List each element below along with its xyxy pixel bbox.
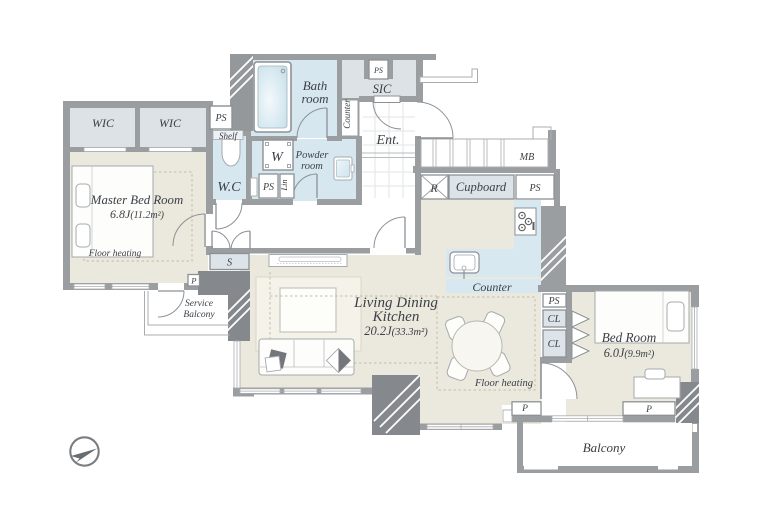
svg-text:CL: CL — [548, 339, 561, 350]
svg-text:PS: PS — [373, 66, 383, 75]
svg-text:WIC: WIC — [159, 116, 182, 130]
svg-text:Kitchen: Kitchen — [372, 309, 420, 325]
svg-text:Balcony: Balcony — [583, 440, 626, 455]
svg-text:SIC: SIC — [373, 82, 392, 96]
svg-text:Powder: Powder — [295, 150, 330, 161]
svg-text:Cupboard: Cupboard — [456, 180, 507, 194]
svg-text:PS: PS — [528, 183, 540, 194]
svg-text:Counter: Counter — [342, 99, 352, 129]
svg-text:P: P — [190, 276, 196, 286]
svg-text:Service: Service — [185, 299, 213, 309]
svg-text:P: P — [521, 404, 528, 414]
svg-text:CL: CL — [548, 314, 561, 325]
svg-text:PS: PS — [262, 182, 274, 193]
svg-text:S: S — [227, 258, 233, 269]
svg-text:Floor heating: Floor heating — [88, 249, 142, 259]
svg-text:Master Bed Room: Master Bed Room — [90, 193, 183, 207]
svg-text:Ent.: Ent. — [376, 133, 400, 148]
svg-text:P: P — [645, 405, 652, 415]
svg-text:20.2J(33.3m²): 20.2J(33.3m²) — [364, 324, 428, 338]
svg-text:6.0J(9.9m²): 6.0J(9.9m²) — [604, 346, 655, 360]
svg-text:room: room — [301, 161, 323, 172]
svg-text:W: W — [271, 150, 284, 165]
svg-text:MB: MB — [519, 152, 534, 163]
svg-text:W.C: W.C — [217, 180, 241, 195]
svg-text:PS: PS — [547, 296, 559, 307]
svg-text:Lin: Lin — [279, 179, 289, 191]
svg-text:Balcony: Balcony — [183, 310, 215, 320]
svg-text:6.8J(11.2m²): 6.8J(11.2m²) — [110, 207, 165, 221]
svg-text:Shelf: Shelf — [219, 131, 238, 141]
svg-text:WIC: WIC — [92, 116, 115, 130]
svg-text:Bed Room: Bed Room — [602, 330, 657, 345]
svg-text:Counter: Counter — [472, 280, 512, 294]
svg-text:Floor heating: Floor heating — [474, 378, 533, 389]
svg-text:room: room — [302, 91, 329, 106]
svg-text:R: R — [429, 181, 438, 195]
svg-text:PS: PS — [214, 113, 226, 124]
